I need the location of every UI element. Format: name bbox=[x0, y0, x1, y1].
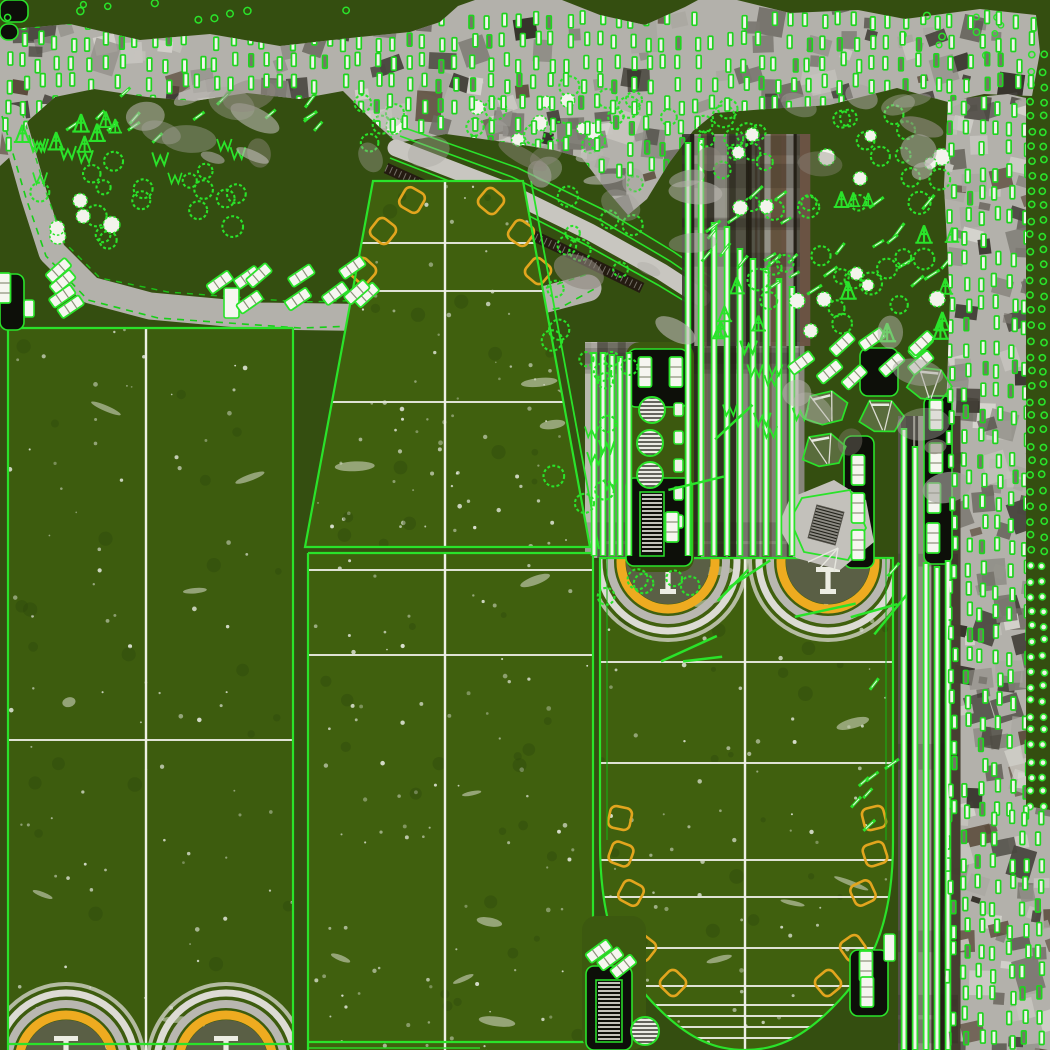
tree-bar-icon bbox=[184, 73, 189, 86]
tree-bar-icon bbox=[249, 54, 254, 67]
wear-speckle bbox=[226, 691, 228, 693]
wear-speckle bbox=[450, 220, 454, 224]
seedling-icon bbox=[1040, 788, 1046, 794]
flowering-tree-icon bbox=[929, 291, 945, 307]
tree-bar-icon bbox=[980, 919, 985, 932]
tree-bar-icon bbox=[359, 81, 364, 94]
wear-speckle bbox=[372, 969, 376, 973]
tree-bar-icon bbox=[978, 455, 983, 468]
grass-shade bbox=[484, 895, 497, 908]
tree-bar-icon bbox=[948, 57, 953, 70]
tree-bar-icon bbox=[982, 561, 987, 574]
wear-speckle bbox=[450, 1036, 454, 1040]
tree-bar-icon bbox=[70, 73, 75, 86]
tree-bar-icon bbox=[756, 32, 761, 45]
tree-bar-icon bbox=[947, 14, 952, 27]
wear-speckle bbox=[677, 1020, 680, 1023]
tree-bar-icon bbox=[531, 75, 536, 88]
tree-bar-icon bbox=[632, 77, 637, 90]
tree-bar-icon bbox=[598, 59, 603, 72]
tree-bar-icon bbox=[965, 805, 970, 818]
tree-bar-icon bbox=[964, 344, 969, 357]
tree-bar-icon bbox=[1010, 541, 1015, 554]
tree-grate bbox=[637, 462, 663, 488]
tree-bar-icon bbox=[392, 57, 397, 70]
wear-speckle bbox=[400, 407, 405, 412]
tree-bar-icon bbox=[499, 33, 504, 46]
tree-bar-icon bbox=[39, 31, 44, 44]
tree-bar-icon bbox=[963, 405, 968, 418]
tree-bar-icon bbox=[167, 80, 172, 93]
wear-speckle bbox=[778, 656, 782, 660]
tree-bar-icon bbox=[551, 118, 556, 131]
grass-shade bbox=[341, 694, 354, 707]
wear-speckle bbox=[178, 466, 182, 470]
stair-flight bbox=[596, 980, 622, 1042]
seedling-icon bbox=[1028, 654, 1034, 660]
tree-bar-icon bbox=[516, 14, 521, 27]
bench bbox=[852, 530, 865, 560]
wear-speckle bbox=[697, 779, 701, 783]
grass-shade bbox=[802, 641, 816, 655]
tree-bar-icon bbox=[516, 118, 521, 131]
tree-bar-icon bbox=[980, 495, 985, 508]
tree-bar-icon bbox=[1040, 962, 1045, 975]
bench bbox=[666, 512, 679, 542]
grass-shade bbox=[403, 517, 416, 530]
seedling-icon bbox=[1028, 685, 1034, 691]
tree-bar-icon bbox=[568, 102, 573, 115]
wear-speckle bbox=[51, 817, 53, 819]
wear-speckle bbox=[227, 411, 232, 416]
wear-speckle bbox=[497, 508, 501, 512]
wear-speckle bbox=[269, 810, 273, 814]
wear-speckle bbox=[467, 500, 470, 503]
tree-bar-icon bbox=[473, 34, 478, 47]
seedling-icon bbox=[1029, 639, 1035, 645]
tree-bar-icon bbox=[979, 428, 984, 441]
tree-bar-icon bbox=[837, 81, 842, 94]
wear-speckle bbox=[557, 830, 561, 834]
seedling-icon bbox=[1041, 670, 1047, 676]
tree-bar-icon bbox=[1010, 453, 1015, 466]
wear-speckle bbox=[433, 351, 436, 354]
tree-bar-icon bbox=[147, 78, 152, 91]
tree-bar-icon bbox=[1012, 104, 1017, 117]
tree-bar-icon bbox=[1017, 60, 1022, 73]
wear-speckle bbox=[791, 717, 794, 720]
tree-bar-icon bbox=[788, 13, 793, 26]
tree-bar-icon bbox=[438, 116, 443, 129]
wear-speckle bbox=[683, 740, 685, 742]
grass-shade bbox=[200, 475, 211, 486]
tree-bar-icon bbox=[147, 58, 152, 71]
flowering-tree-icon bbox=[865, 130, 876, 141]
wear-speckle bbox=[401, 644, 405, 648]
grass-shade bbox=[51, 420, 59, 428]
tree-bar-icon bbox=[981, 234, 986, 247]
tree-bar-icon bbox=[982, 96, 987, 109]
wear-speckle bbox=[344, 926, 348, 930]
wear-speckle bbox=[756, 770, 758, 772]
tree-grate bbox=[631, 1017, 659, 1045]
center-pitch bbox=[303, 548, 598, 1050]
tree-bar-icon bbox=[977, 986, 982, 999]
wear-speckle bbox=[790, 830, 792, 832]
tree-bar-icon bbox=[1007, 1011, 1012, 1024]
tree-bar-icon bbox=[917, 38, 922, 51]
wear-speckle bbox=[816, 924, 819, 927]
tree-bar-icon bbox=[820, 57, 825, 70]
tree-bar-icon bbox=[8, 52, 13, 65]
wear-speckle bbox=[438, 447, 442, 451]
flowering-tree-icon bbox=[862, 279, 874, 291]
grass-shade bbox=[711, 667, 716, 672]
wear-speckle bbox=[562, 970, 564, 972]
wear-speckle bbox=[501, 658, 503, 660]
tree-bar-icon bbox=[696, 55, 701, 68]
tree-bar-icon bbox=[998, 475, 1003, 488]
wear-speckle bbox=[567, 858, 571, 862]
rock-facet bbox=[620, 68, 641, 89]
flowering-tree-icon bbox=[745, 128, 758, 141]
wear-speckle bbox=[197, 960, 199, 962]
wear-speckle bbox=[634, 733, 638, 737]
tree-bar-icon bbox=[20, 53, 25, 66]
tree-bar-icon bbox=[979, 738, 984, 751]
wear-speckle bbox=[407, 615, 410, 618]
wear-speckle bbox=[66, 876, 70, 880]
flowering-tree-icon bbox=[804, 324, 818, 338]
tree-bar-icon bbox=[649, 157, 654, 170]
tree-bar-icon bbox=[981, 383, 986, 396]
tree-bar-icon bbox=[648, 56, 653, 69]
wear-speckle bbox=[510, 365, 512, 367]
tree-bar-icon bbox=[980, 803, 985, 816]
wear-speckle bbox=[197, 718, 202, 723]
tree-bar-icon bbox=[952, 800, 957, 813]
tree-bar-icon bbox=[534, 12, 539, 25]
tree-bar-icon bbox=[585, 122, 590, 135]
grass-shade bbox=[491, 445, 505, 459]
tree-bar-icon bbox=[1037, 986, 1042, 999]
tree-bar-icon bbox=[992, 274, 997, 287]
wear-speckle bbox=[519, 485, 522, 488]
tree-bar-icon bbox=[951, 941, 956, 954]
bench bbox=[927, 523, 940, 553]
tree-bar-icon bbox=[966, 582, 971, 595]
grass-shade bbox=[728, 752, 734, 758]
wear-speckle bbox=[131, 386, 133, 388]
wear-speckle bbox=[84, 863, 87, 866]
tree-bar-icon bbox=[1007, 140, 1012, 153]
tree-bar-icon bbox=[1036, 899, 1041, 912]
seedling-icon bbox=[1039, 594, 1045, 600]
wear-speckle bbox=[42, 354, 46, 358]
wear-speckle bbox=[81, 790, 84, 793]
wear-speckle bbox=[670, 848, 674, 852]
tree-bar-icon bbox=[998, 53, 1003, 66]
wear-speckle bbox=[537, 464, 539, 466]
tree-bar-icon bbox=[1023, 1010, 1028, 1023]
wear-speckle bbox=[473, 526, 476, 529]
tree-bar-icon bbox=[965, 945, 970, 958]
tree-bar-icon bbox=[951, 1013, 956, 1026]
wear-speckle bbox=[546, 706, 551, 711]
flowering-tree-icon bbox=[732, 146, 745, 159]
tree-bar-icon bbox=[6, 138, 11, 151]
seedling-icon bbox=[1027, 788, 1033, 794]
wear-speckle bbox=[541, 1018, 544, 1021]
tree-bar-icon bbox=[452, 38, 457, 51]
tree-bar-icon bbox=[961, 876, 966, 889]
wear-speckle bbox=[373, 574, 376, 577]
wear-speckle bbox=[393, 310, 396, 313]
wear-speckle bbox=[243, 366, 248, 371]
tree-bar-icon bbox=[569, 15, 574, 28]
wear-speckle bbox=[225, 857, 227, 859]
landscape-site-plan-map bbox=[0, 0, 1050, 1050]
tree-bar-icon bbox=[676, 37, 681, 50]
tree-bar-icon bbox=[991, 970, 996, 983]
tree-bar-icon bbox=[323, 55, 328, 68]
wear-speckle bbox=[30, 746, 32, 748]
wear-speckle bbox=[425, 1044, 428, 1047]
tree-bar-icon bbox=[964, 79, 969, 92]
tree-bar-icon bbox=[992, 187, 997, 200]
tree-bar-icon bbox=[998, 73, 1003, 86]
tree-bar-icon bbox=[952, 565, 957, 578]
wear-speckle bbox=[220, 704, 223, 707]
tree-bar-icon bbox=[1022, 1031, 1027, 1044]
wear-speckle bbox=[558, 435, 561, 438]
tree-bar-icon bbox=[708, 36, 713, 49]
tree-bar-icon bbox=[857, 60, 862, 73]
wear-speckle bbox=[226, 625, 229, 628]
tree-bar-icon bbox=[1009, 519, 1014, 532]
tree-bar-icon bbox=[617, 165, 622, 178]
tree-bar-icon bbox=[376, 39, 381, 52]
tree-bar-icon bbox=[993, 169, 998, 182]
tree-bar-icon bbox=[564, 137, 569, 150]
grass-shade bbox=[15, 600, 27, 612]
grass-shade bbox=[711, 755, 719, 763]
tree-bar-icon bbox=[948, 784, 953, 797]
wear-speckle bbox=[609, 685, 613, 689]
tree-bar-icon bbox=[980, 35, 985, 48]
tree-bar-icon bbox=[996, 207, 1001, 220]
wear-speckle bbox=[548, 369, 552, 373]
wear-speckle bbox=[18, 985, 22, 989]
tree-bar-icon bbox=[947, 210, 952, 223]
tree-bar-icon bbox=[85, 38, 90, 51]
tree-bar-icon bbox=[949, 690, 954, 703]
wear-speckle bbox=[682, 663, 687, 668]
tree-bar-icon bbox=[968, 628, 973, 641]
wear-speckle bbox=[102, 691, 104, 693]
grass-shade bbox=[544, 717, 552, 725]
grass-shade bbox=[410, 788, 422, 800]
tree-bar-icon bbox=[945, 970, 950, 983]
tree-bar-icon bbox=[612, 80, 617, 93]
tree-bar-icon bbox=[470, 97, 475, 110]
tree-bar-icon bbox=[646, 39, 651, 52]
wear-speckle bbox=[451, 414, 454, 417]
tree-bar-icon bbox=[536, 31, 541, 44]
wear-speckle bbox=[317, 502, 319, 504]
tree-bar-icon bbox=[23, 33, 28, 46]
tree-bar-icon bbox=[772, 96, 777, 109]
wear-speckle bbox=[226, 540, 231, 545]
wear-speckle bbox=[160, 765, 164, 769]
tree-bar-icon bbox=[665, 122, 670, 135]
grass-shade bbox=[706, 924, 720, 938]
tree-bar-icon bbox=[1022, 473, 1027, 486]
tree-bar-icon bbox=[993, 586, 998, 599]
wear-speckle bbox=[546, 866, 548, 868]
tree-bar-icon bbox=[966, 713, 971, 726]
tree-bar-icon bbox=[968, 55, 973, 68]
wear-speckle bbox=[113, 614, 116, 617]
left-field-turf bbox=[8, 328, 293, 1050]
grass-shade bbox=[518, 821, 528, 831]
flowering-tree-icon bbox=[103, 216, 120, 233]
tree-bar-icon bbox=[937, 78, 942, 91]
wear-speckle bbox=[53, 462, 56, 465]
tree-bar-icon bbox=[1011, 697, 1016, 710]
grass-shade bbox=[433, 757, 446, 770]
tree-bar-icon bbox=[419, 120, 424, 133]
tree-bar-icon bbox=[611, 35, 616, 48]
wear-speckle bbox=[233, 790, 235, 792]
tree-bar-icon bbox=[996, 252, 1001, 265]
tree-bar-icon bbox=[1020, 902, 1025, 915]
tree-bar-icon bbox=[979, 782, 984, 795]
grass-shade bbox=[501, 612, 507, 618]
tree-bar-icon bbox=[57, 74, 62, 87]
wear-speckle bbox=[375, 261, 378, 264]
tree-bar-icon bbox=[551, 60, 556, 73]
bench-top bbox=[666, 512, 679, 542]
wear-speckle bbox=[563, 823, 568, 828]
left-great-lawn bbox=[0, 323, 304, 1050]
tree-bar-icon bbox=[644, 116, 649, 129]
tree-bar-icon bbox=[611, 101, 616, 114]
wear-speckle bbox=[314, 978, 318, 982]
tree-bar-icon bbox=[1007, 607, 1012, 620]
wear-speckle bbox=[195, 927, 200, 932]
tree-bar-icon bbox=[953, 537, 958, 550]
tree-bar-icon bbox=[998, 407, 1003, 420]
tree-bar-icon bbox=[981, 341, 986, 354]
tree-bar-icon bbox=[374, 100, 379, 113]
tree-bar-icon bbox=[773, 12, 778, 25]
tree-bar-icon bbox=[964, 1032, 969, 1045]
tree-bar-icon bbox=[403, 116, 408, 129]
wear-speckle bbox=[858, 767, 862, 771]
wear-speckle bbox=[687, 825, 690, 828]
tree-bar-icon bbox=[975, 875, 980, 888]
tree-bar-icon bbox=[422, 73, 427, 86]
tree-bar-icon bbox=[1030, 32, 1035, 45]
seedling-icon bbox=[1027, 579, 1033, 585]
tree-bar-icon bbox=[966, 208, 971, 221]
wear-speckle bbox=[652, 891, 655, 894]
tree-bar-icon bbox=[985, 77, 990, 90]
tree-bar-icon bbox=[952, 741, 957, 754]
tree-bar-icon bbox=[990, 986, 995, 999]
wear-speckle bbox=[451, 485, 453, 487]
grass-shade bbox=[17, 339, 31, 353]
flowering-tree-icon bbox=[817, 292, 832, 307]
tree-bar-icon bbox=[771, 57, 776, 70]
tree-bar-icon bbox=[851, 12, 856, 25]
flowering-tree-icon bbox=[73, 193, 87, 207]
tree-bar-icon bbox=[952, 516, 957, 529]
grass-shade bbox=[729, 869, 744, 884]
tree-bar-icon bbox=[355, 53, 360, 66]
flowering-tree-icon bbox=[76, 209, 90, 223]
wear-speckle bbox=[94, 418, 97, 421]
tree-bar-icon bbox=[249, 77, 254, 90]
tree-bar-icon bbox=[584, 56, 589, 69]
grass-shade bbox=[484, 194, 491, 201]
grass-shade bbox=[394, 461, 408, 475]
tree-bar-icon bbox=[452, 101, 457, 114]
wear-speckle bbox=[503, 674, 508, 679]
grass-shade bbox=[531, 449, 538, 456]
wear-speckle bbox=[98, 548, 102, 552]
tree-bar-icon bbox=[1023, 877, 1028, 890]
tree-bar-icon bbox=[996, 779, 1001, 792]
tree-bar-icon bbox=[1009, 345, 1014, 358]
wear-speckle bbox=[747, 752, 751, 756]
wear-speckle bbox=[397, 794, 401, 798]
wear-speckle bbox=[187, 852, 190, 855]
seedling-icon bbox=[1039, 774, 1045, 780]
seedling-icon bbox=[1027, 714, 1033, 720]
tree-bar-icon bbox=[579, 96, 584, 109]
tree-bar-icon bbox=[489, 74, 494, 87]
tree-bar-icon bbox=[1039, 811, 1044, 824]
wear-speckle bbox=[348, 634, 351, 637]
tree-bar-icon bbox=[675, 78, 680, 91]
wear-speckle bbox=[27, 823, 30, 826]
stair-flight bbox=[640, 492, 664, 556]
wear-speckle bbox=[498, 378, 501, 381]
seedling-icon bbox=[1029, 622, 1035, 628]
tree-bar-icon bbox=[516, 60, 521, 73]
tree-bar-icon bbox=[615, 55, 620, 68]
grass-shade bbox=[453, 998, 461, 1006]
kiosk bbox=[24, 300, 34, 317]
wear-speckle bbox=[527, 677, 530, 680]
wear-speckle bbox=[163, 839, 166, 842]
site-plan-stage bbox=[0, 0, 1050, 1050]
tree-bar-icon bbox=[993, 650, 998, 663]
grass-shade bbox=[499, 828, 506, 835]
tree-bar-icon bbox=[548, 31, 553, 44]
wear-speckle bbox=[60, 487, 63, 490]
wear-speckle bbox=[192, 607, 197, 612]
tree-bar-icon bbox=[993, 121, 998, 134]
tree-bar-icon bbox=[935, 16, 940, 29]
grass-shade bbox=[236, 664, 249, 677]
grass-shade bbox=[338, 528, 352, 542]
tree-bar-icon bbox=[341, 38, 346, 51]
tree-bar-icon bbox=[52, 36, 57, 49]
tree-bar-icon bbox=[614, 116, 619, 129]
